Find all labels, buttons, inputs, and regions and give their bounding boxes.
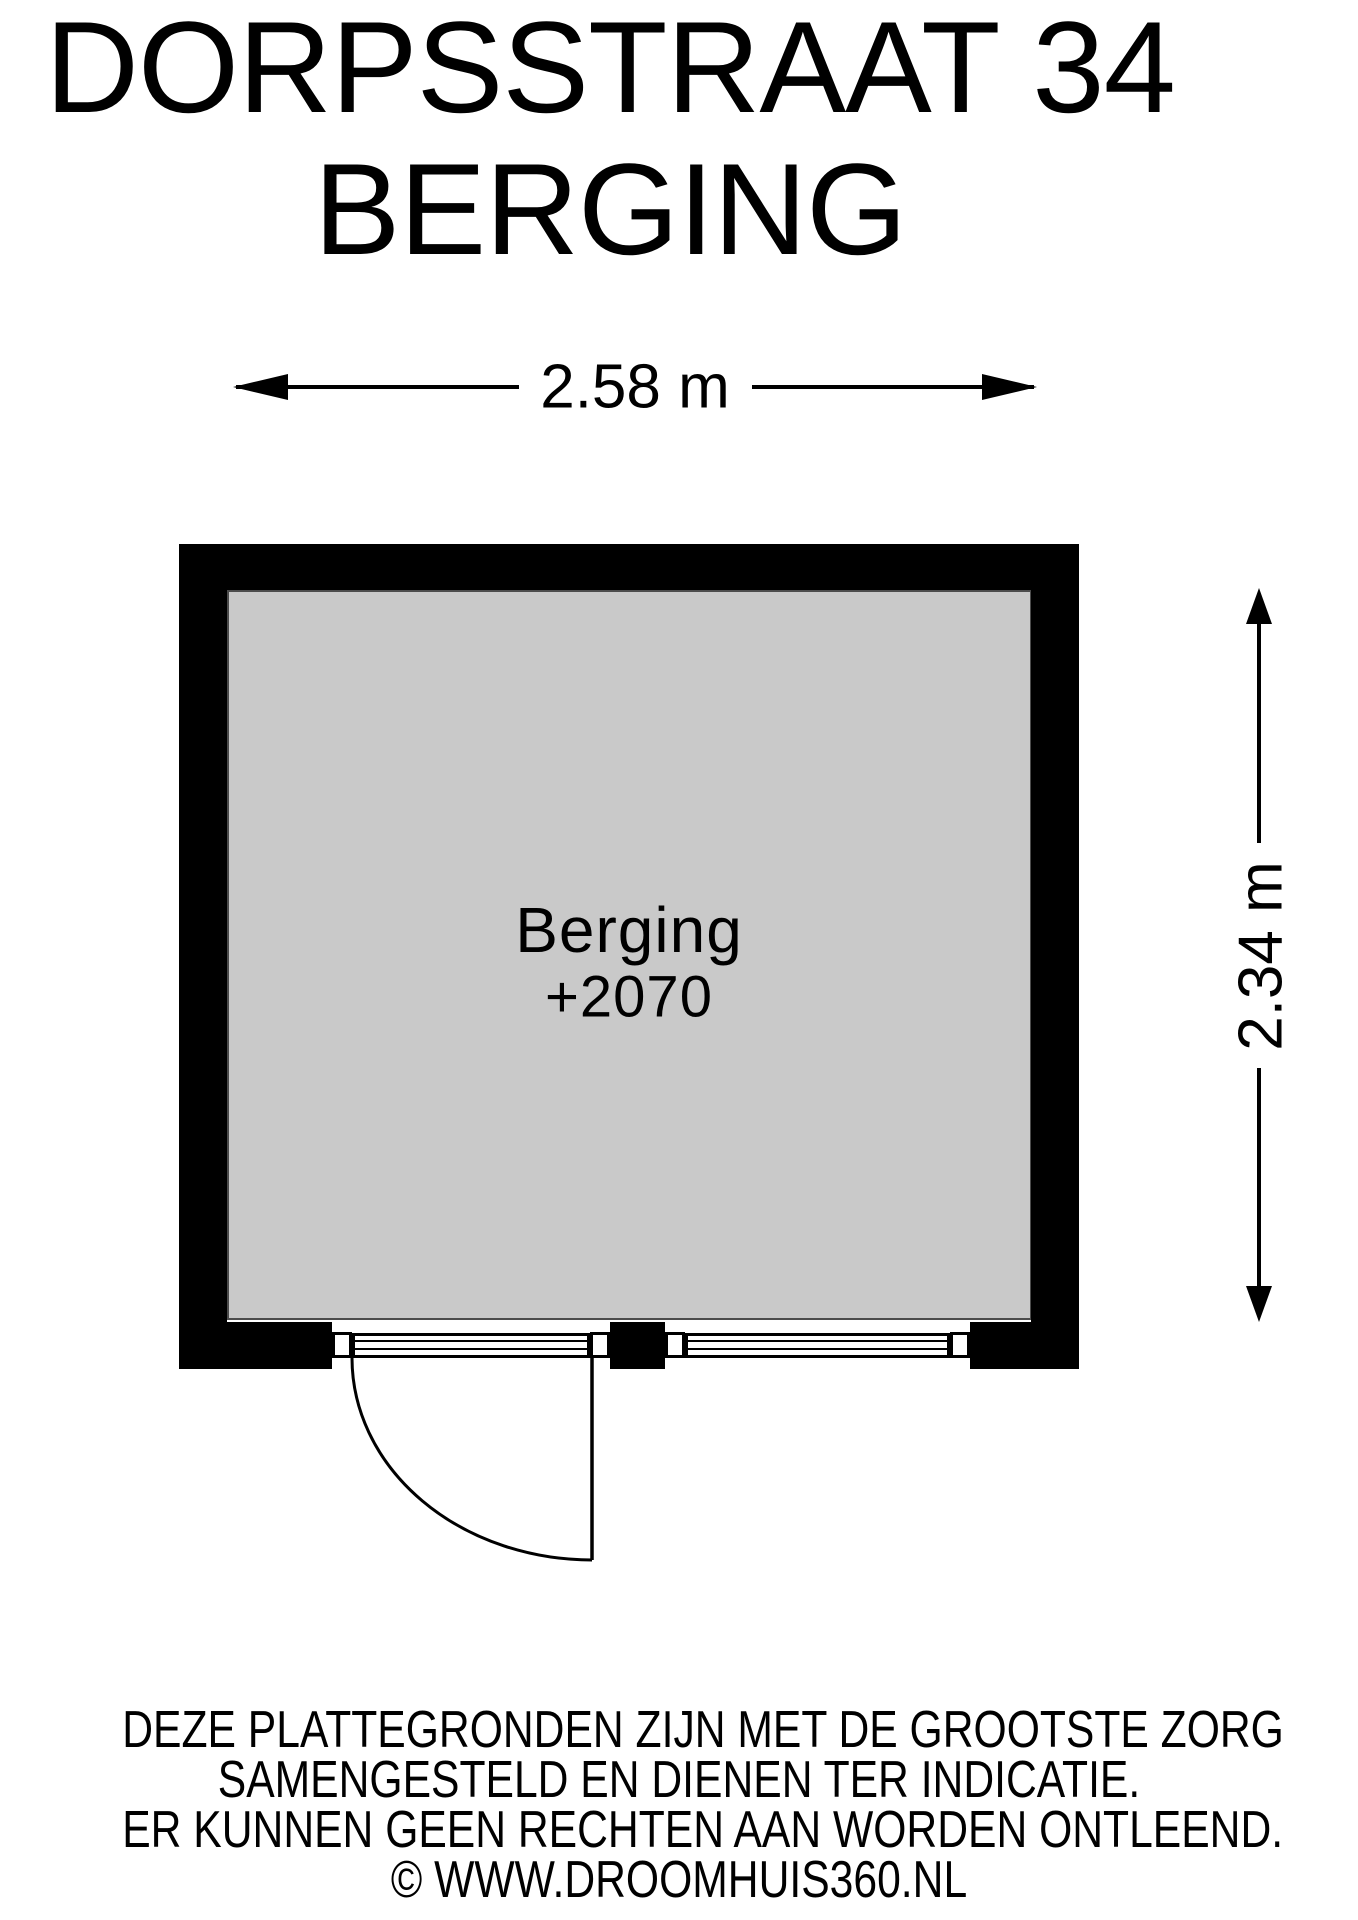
door-frame-left [332, 1332, 352, 1358]
width-dimension-label: 2.58 m [540, 352, 730, 423]
disclaimer: DEZE PLATTEGRONDEN ZIJN MET DE GROOTSTE … [0, 1705, 1358, 1905]
room-elevation-label: +2070 [545, 964, 713, 1031]
wall-left [179, 544, 227, 1369]
wall-bottom-pier [610, 1322, 665, 1369]
wall-top [179, 544, 1079, 590]
door-swing-arc [352, 1358, 592, 1560]
wall-right [1031, 544, 1079, 1369]
disclaimer-line-1: DEZE PLATTEGRONDEN ZIJN MET DE GROOTSTE … [122, 1705, 1236, 1755]
wall-bottom-left-segment [179, 1322, 332, 1369]
room-name-label: Berging [515, 893, 743, 967]
door-glazing [352, 1333, 590, 1358]
page-title-address: DORPSSTRAAT 34 [45, 0, 1175, 138]
page-title-room: BERGING [45, 138, 1175, 280]
door-frame-right [590, 1332, 610, 1358]
window-glazing [685, 1333, 950, 1358]
window-frame-right [950, 1332, 970, 1358]
disclaimer-line-3: ER KUNNEN GEEN RECHTEN AAN WORDEN ONTLEE… [122, 1805, 1236, 1855]
height-dimension-label: 2.34 m [1226, 861, 1297, 1051]
window-frame-left [665, 1332, 685, 1358]
page-title: DORPSSTRAAT 34 BERGING [45, 0, 1175, 280]
disclaimer-line-2: SAMENGESTELD EN DIENEN TER INDICATIE. [122, 1755, 1236, 1805]
disclaimer-copyright: © WWW.DROOMHUIS360.NL [122, 1855, 1236, 1905]
floor-plan-page: DORPSSTRAAT 34 BERGING Berging +2070 2.5… [0, 0, 1358, 1920]
wall-bottom-right-segment [970, 1322, 1079, 1369]
